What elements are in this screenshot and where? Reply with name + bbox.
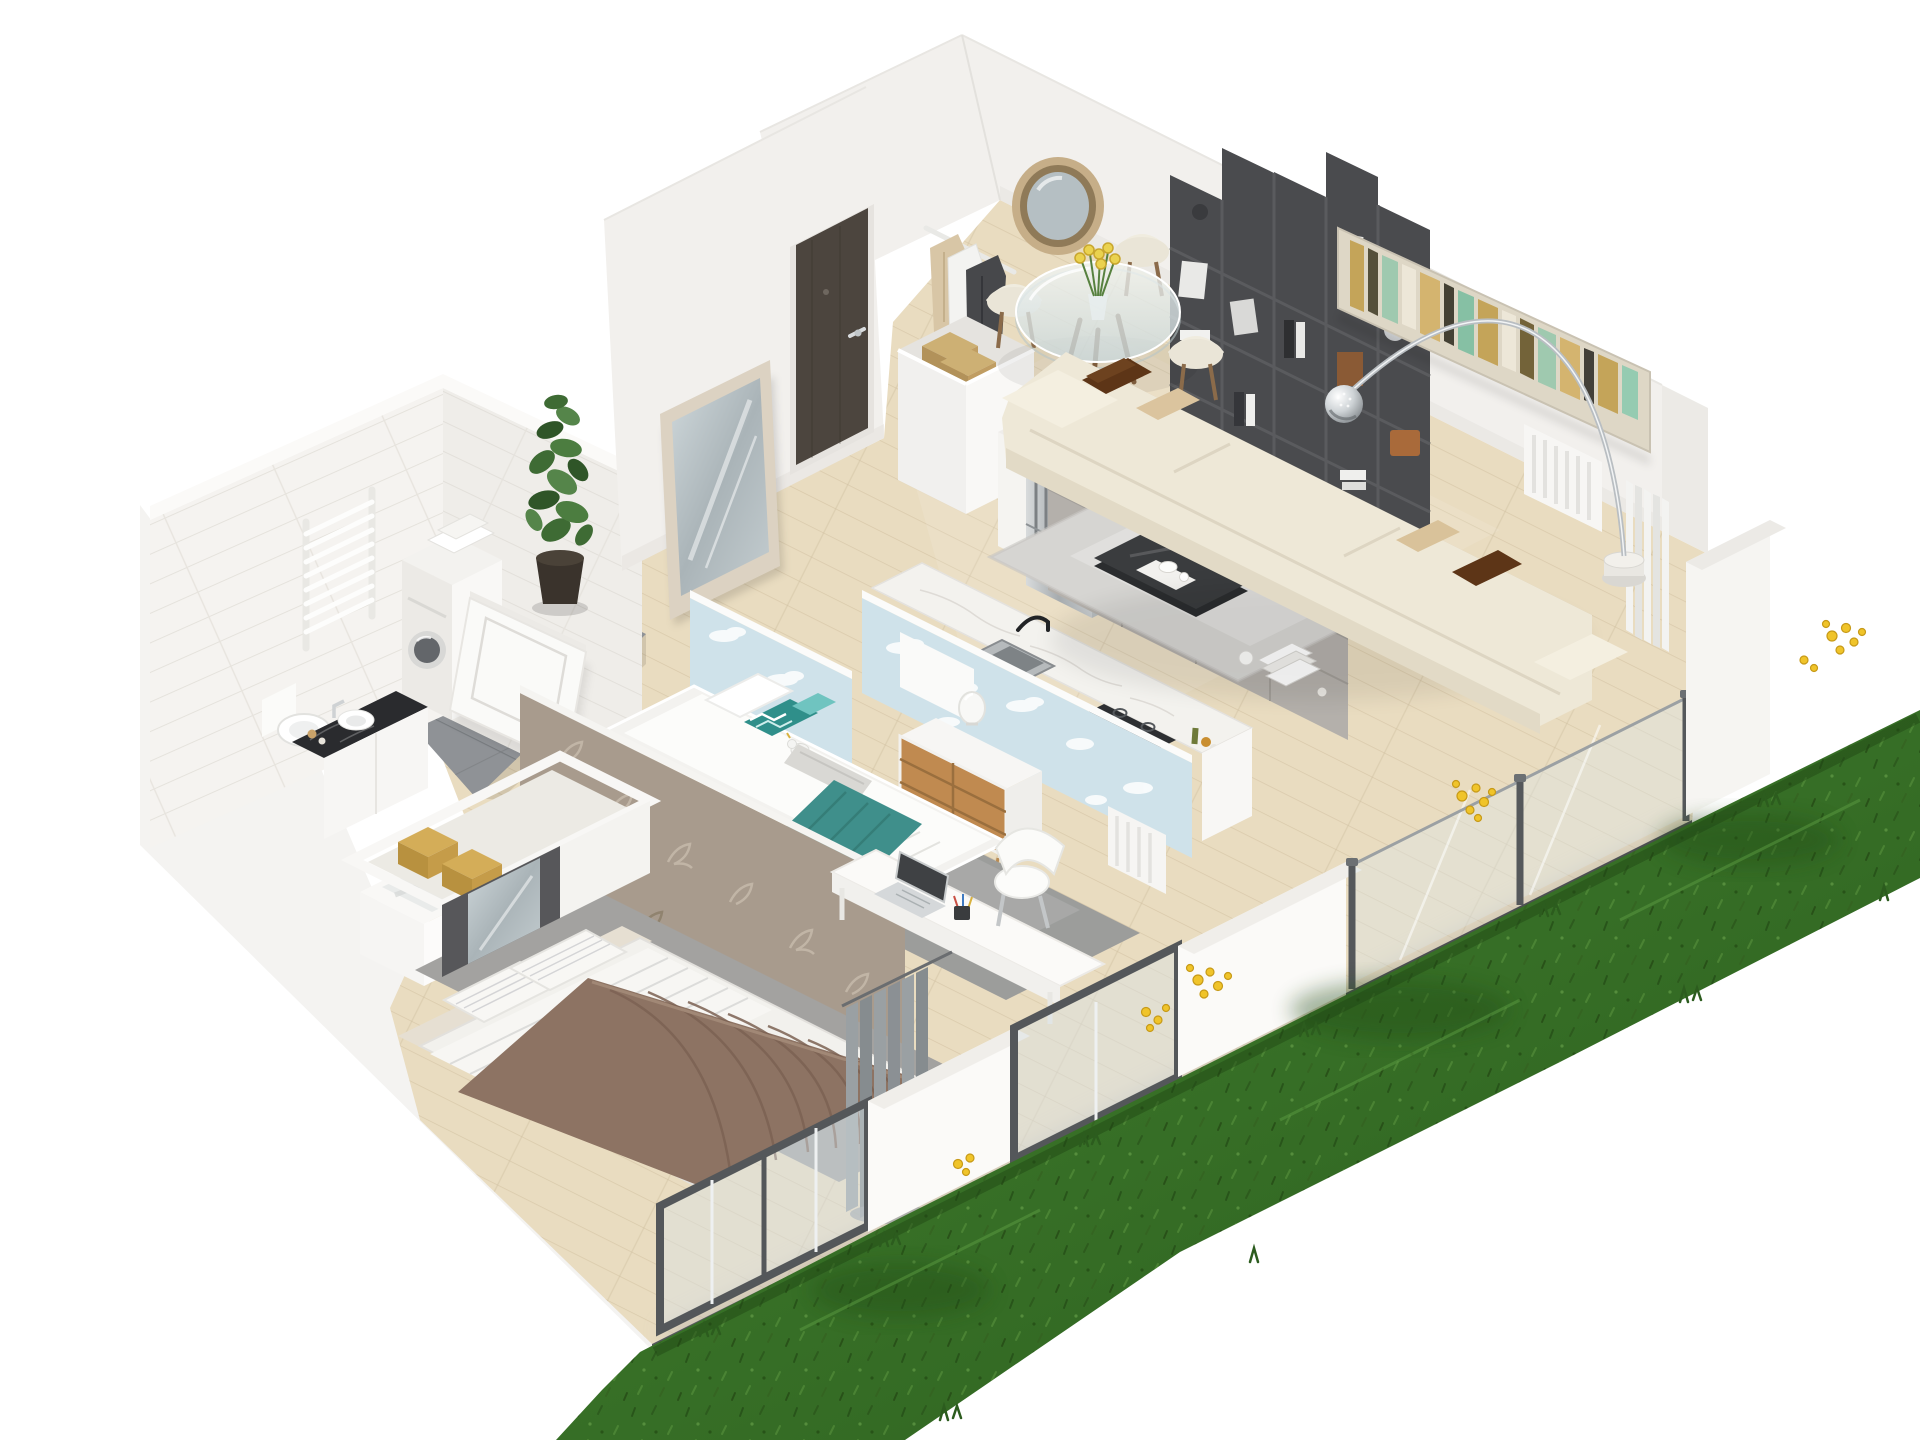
- soap-bottle: [319, 738, 326, 745]
- floorplan-render: [0, 0, 1920, 1440]
- apartment-3d-floorplan: [0, 0, 1920, 1440]
- bowl: [1159, 562, 1177, 573]
- entry-door: [790, 204, 874, 475]
- door-peephole: [823, 289, 829, 295]
- glass-table-lamp: [959, 692, 985, 724]
- cup: [1180, 573, 1189, 582]
- soap-bottle: [308, 730, 317, 739]
- round-rope-mirror: [1012, 157, 1104, 255]
